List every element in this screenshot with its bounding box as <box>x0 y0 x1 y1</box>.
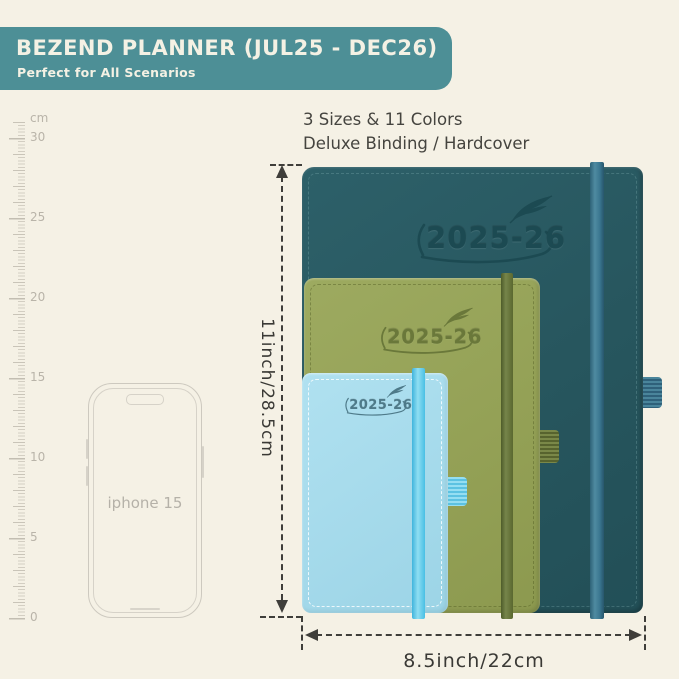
planner-small: 2025-26 <box>302 373 448 613</box>
planner-small-logo: 2025-26 <box>342 384 414 416</box>
dim-width-line <box>316 634 631 636</box>
phone-label: iphone 15 <box>89 494 201 512</box>
phone-volume-button <box>86 466 88 486</box>
pen-loop <box>643 377 662 408</box>
feather-icon <box>510 196 552 223</box>
phone-dynamic-island <box>126 394 164 405</box>
phone-outline: iphone 15 <box>88 383 202 618</box>
dim-height-label: 11inch/28.5cm <box>257 318 277 458</box>
product-info: 3 Sizes & 11 Colors Deluxe Binding / Har… <box>303 108 529 156</box>
elastic-band <box>412 368 425 619</box>
planner-year-emboss: 2025-26 <box>349 397 412 412</box>
banner-title: BEZEND PLANNER (JUL25 - DEC26) <box>16 36 438 60</box>
feather-icon <box>444 308 473 326</box>
info-line-sizes: 3 Sizes & 11 Colors <box>303 108 529 132</box>
ruler <box>8 112 25 620</box>
dim-height-bottom-tick <box>260 616 302 618</box>
ruler-label: 20 <box>30 290 45 304</box>
planner-medium-logo: 2025-26 <box>376 306 485 354</box>
planner-large-logo: 2025-26 <box>410 193 570 263</box>
dim-width-label: 8.5inch/22cm <box>403 650 545 672</box>
ruler-label: 25 <box>30 210 45 224</box>
phone-power-button <box>202 446 204 478</box>
planner-year-emboss: 2025-26 <box>387 325 482 348</box>
phone-volume-button <box>86 439 88 459</box>
elastic-band <box>590 162 604 619</box>
ruler-label: 0 <box>30 610 38 624</box>
planner-year-emboss: 2025-26 <box>426 221 566 255</box>
elastic-band <box>501 273 513 619</box>
ruler-label: 10 <box>30 450 45 464</box>
phone-home-indicator <box>130 608 160 610</box>
pen-loop <box>448 477 467 506</box>
dim-height-line <box>281 176 283 600</box>
dim-width-right-tick <box>644 616 646 650</box>
ruler-label: 5 <box>30 530 38 544</box>
arrow-left-icon <box>305 629 318 641</box>
ruler-label: 30 <box>30 130 45 144</box>
dim-width-left-tick <box>301 616 303 650</box>
info-line-binding: Deluxe Binding / Hardcover <box>303 132 529 156</box>
arrow-right-icon <box>629 629 642 641</box>
ruler-label: 15 <box>30 370 45 384</box>
header-banner: BEZEND PLANNER (JUL25 - DEC26) Perfect f… <box>0 27 452 90</box>
arrow-down-icon <box>276 600 288 613</box>
pen-loop <box>540 430 559 463</box>
arrow-up-icon <box>276 165 288 178</box>
ruler-unit-label: cm <box>30 111 48 125</box>
banner-subtitle: Perfect for All Scenarios <box>17 65 196 80</box>
